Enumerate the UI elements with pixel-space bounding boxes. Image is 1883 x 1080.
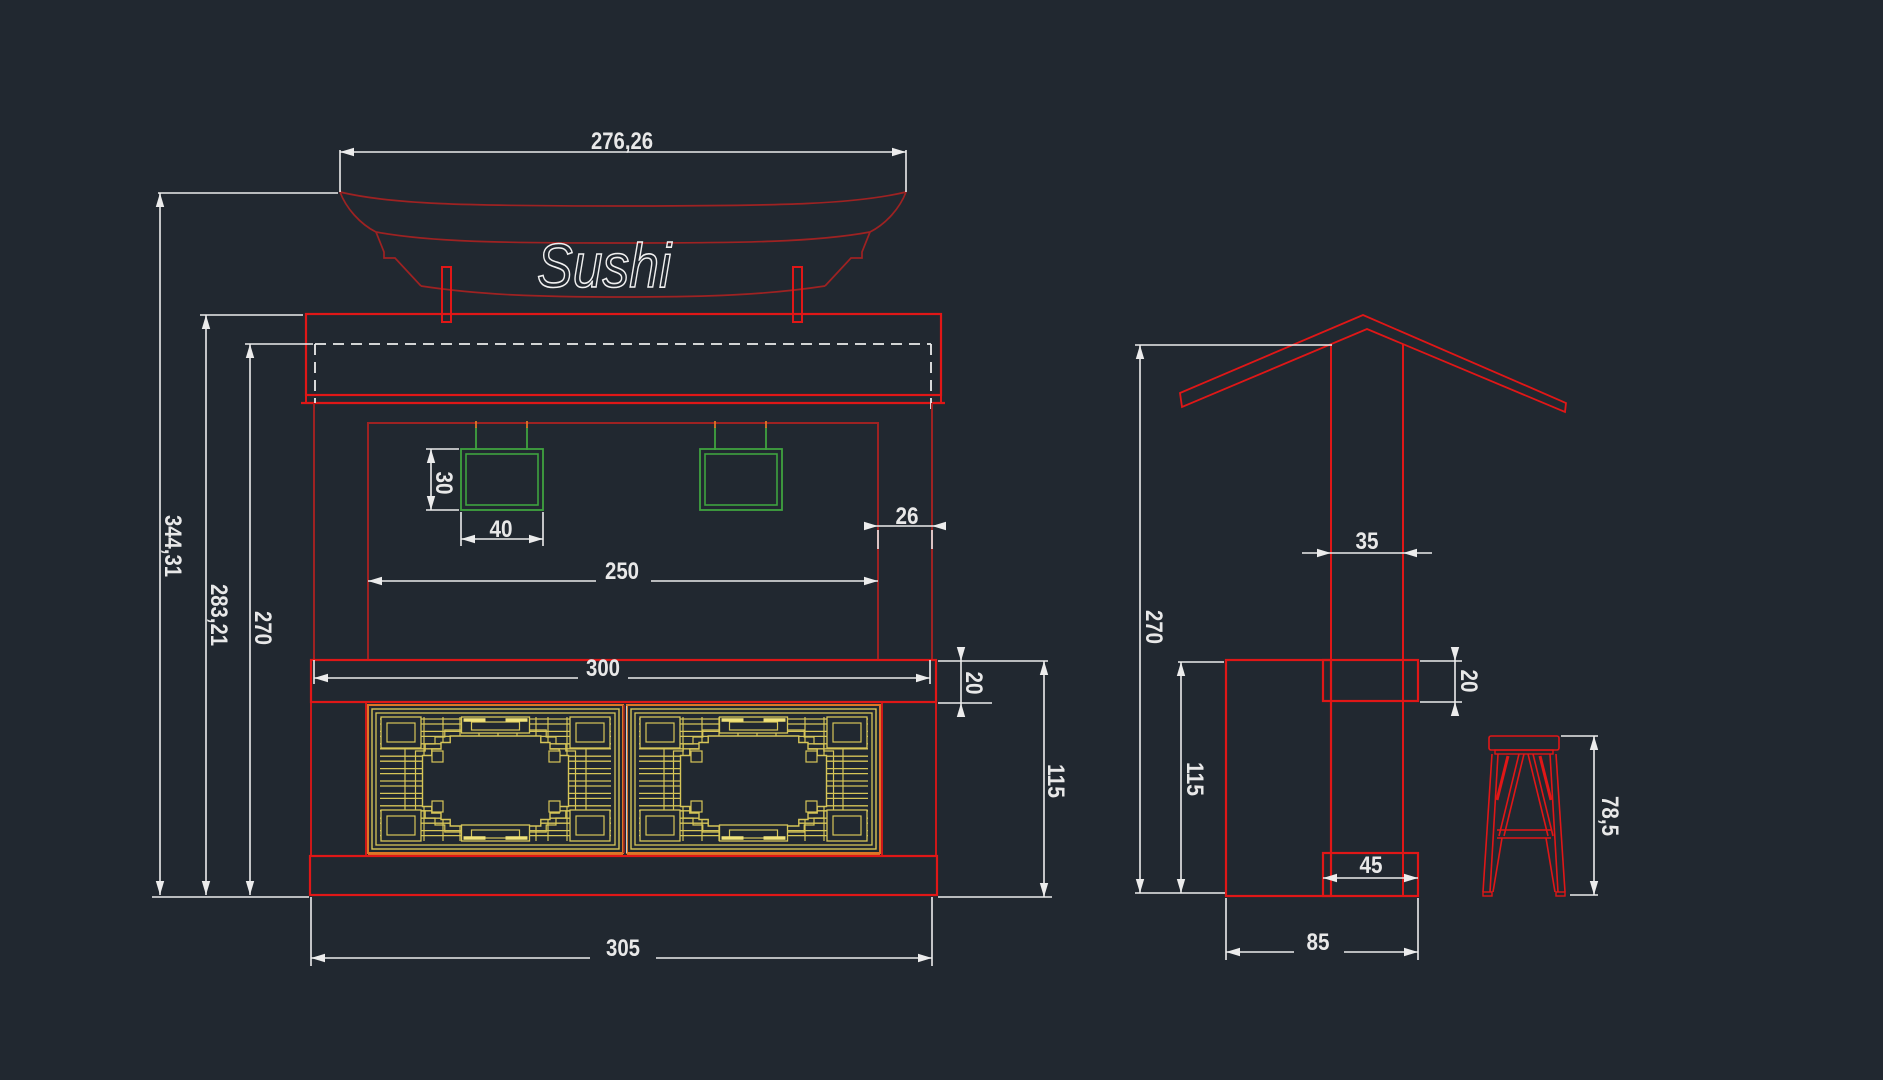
svg-text:26: 26 [896, 503, 919, 530]
svg-text:30: 30 [430, 472, 457, 495]
svg-text:78,5: 78,5 [1596, 796, 1623, 836]
svg-text:300: 300 [586, 655, 620, 682]
svg-text:35: 35 [1356, 528, 1379, 555]
svg-text:250: 250 [605, 558, 639, 585]
svg-text:270: 270 [249, 611, 276, 645]
svg-text:305: 305 [606, 935, 640, 962]
svg-text:270: 270 [1140, 610, 1167, 644]
svg-text:115: 115 [1042, 764, 1069, 798]
svg-text:40: 40 [490, 516, 513, 543]
svg-text:115: 115 [1181, 762, 1208, 796]
svg-text:276,26: 276,26 [591, 128, 653, 155]
svg-text:20: 20 [1455, 670, 1482, 693]
svg-text:283,21: 283,21 [205, 584, 232, 646]
svg-text:Sushi: Sushi [537, 232, 673, 301]
svg-text:20: 20 [960, 672, 987, 695]
svg-text:45: 45 [1360, 852, 1383, 879]
svg-text:85: 85 [1307, 929, 1330, 956]
svg-text:344,31: 344,31 [159, 515, 186, 577]
